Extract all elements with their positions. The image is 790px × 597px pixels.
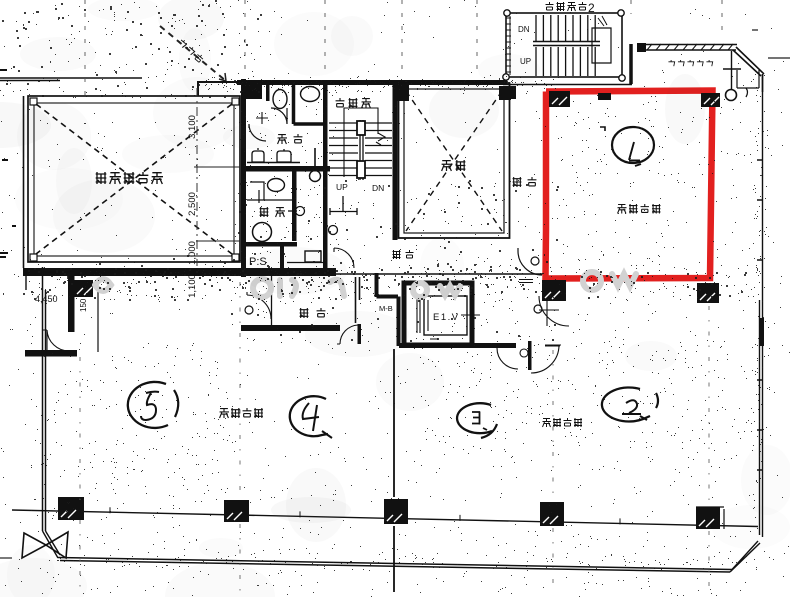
svg-text:2: 2 <box>588 1 595 15</box>
svg-text:DN: DN <box>518 25 530 34</box>
svg-text:DN: DN <box>372 183 384 193</box>
svg-text:1,000: 1,000 <box>187 241 198 265</box>
svg-text:E1.V: E1.V <box>433 312 460 323</box>
svg-text:1,100: 1,100 <box>187 274 198 298</box>
svg-text:M-B: M-B <box>379 304 393 313</box>
svg-text:150: 150 <box>79 298 88 312</box>
svg-text:UP: UP <box>336 182 348 192</box>
